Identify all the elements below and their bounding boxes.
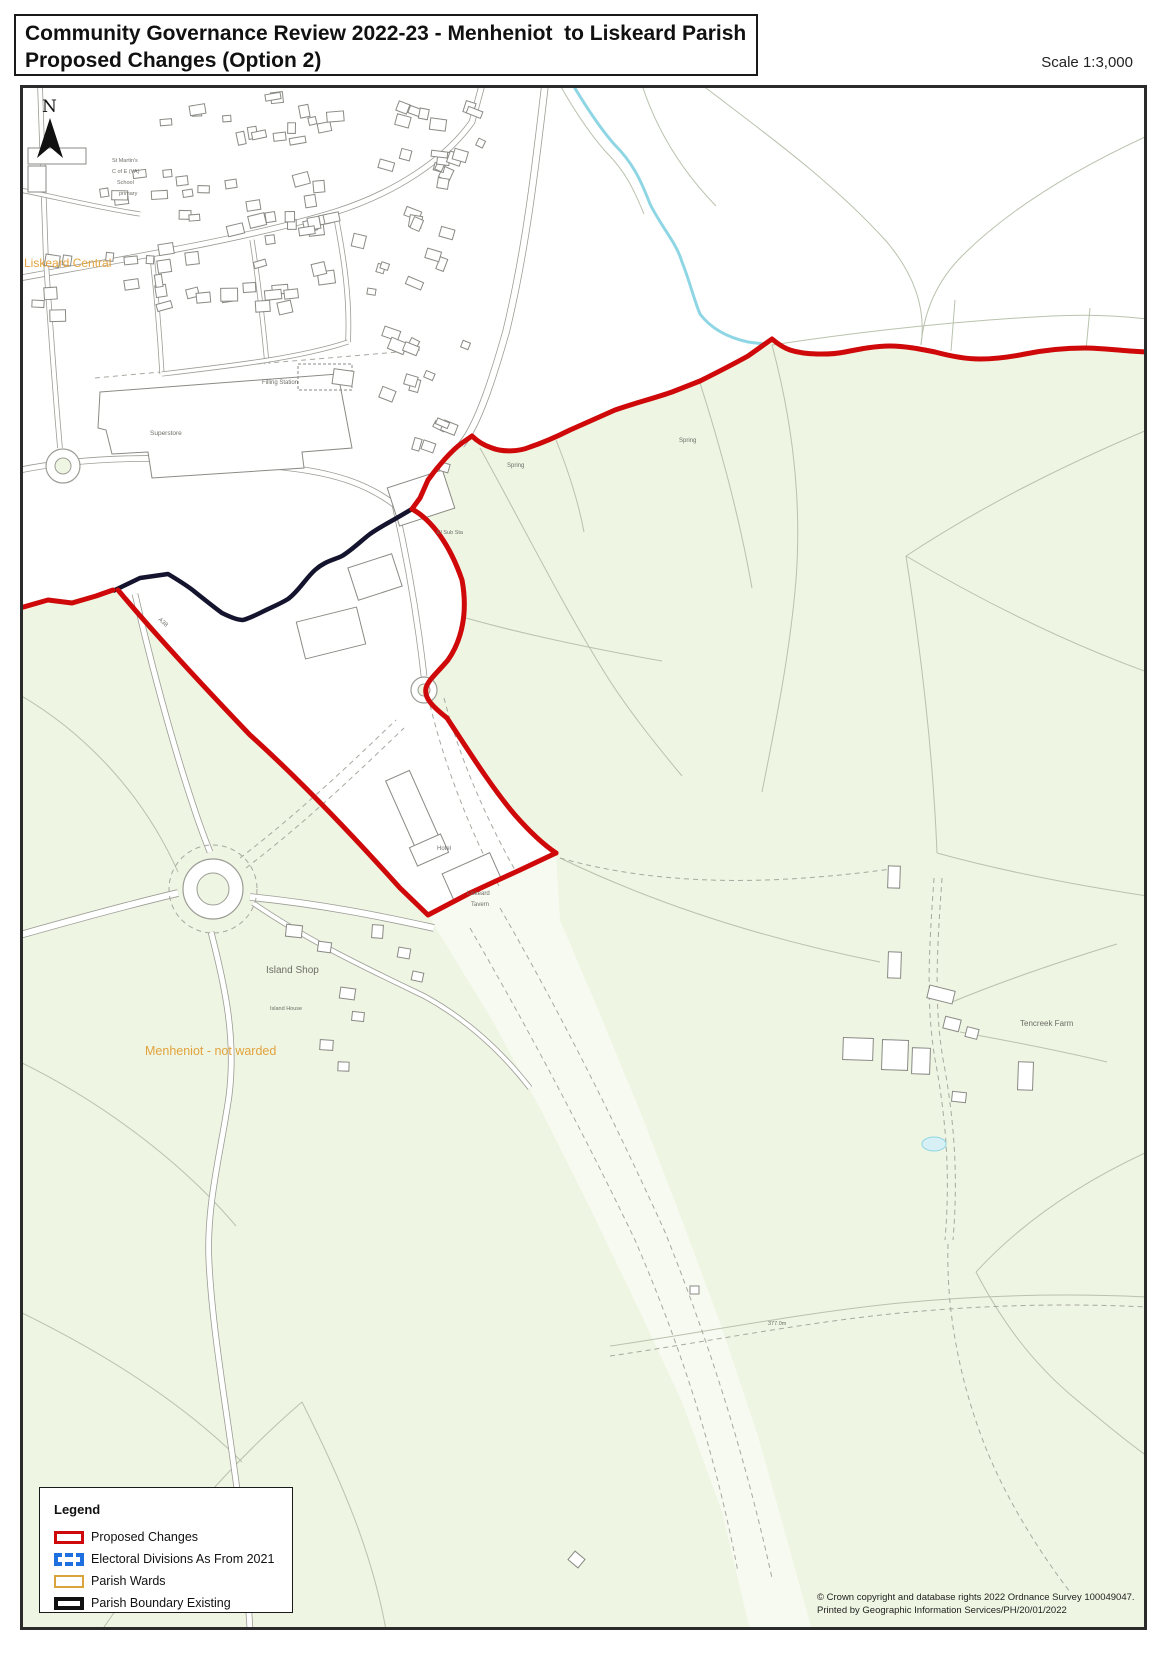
map-label: Tencreek Farm [1020, 1019, 1074, 1028]
proposed-changes-swatch-icon [54, 1531, 84, 1544]
parish-boundary-swatch-icon [54, 1597, 84, 1610]
map-label: Menheniot - not warded [145, 1044, 276, 1058]
electoral-divisions-swatch-icon [54, 1553, 84, 1566]
copyright-notice: © Crown copyright and database rights 20… [817, 1591, 1135, 1617]
title-line-1: Community Governance Review 2022-23 - Me… [25, 20, 747, 47]
legend-item-proposed-changes: Proposed Changes [54, 1526, 292, 1548]
map-label: Liskeard Central [24, 256, 111, 270]
map-label: Superstore [150, 430, 182, 437]
map-label: Liskeard [467, 891, 490, 897]
map-label: Tavern [471, 902, 489, 908]
map-label: Island House [270, 1006, 302, 1012]
map-label: 377.0m [768, 1321, 787, 1327]
scale-label: Scale 1:3,000 [1041, 54, 1133, 71]
title-line-2: Proposed Changes (Option 2) [25, 47, 747, 74]
map-label: Spring [507, 463, 524, 469]
legend-label: Electoral Divisions As From 2021 [91, 1552, 274, 1566]
map-label: primary [119, 191, 138, 197]
legend-label: Proposed Changes [91, 1530, 198, 1544]
map-label: C of E (VA) [112, 169, 140, 175]
map-canvas: Liskeard CentralMenheniot - not wardedIs… [20, 85, 1147, 1630]
map-label: St Martin's [112, 158, 138, 164]
legend-heading: Legend [54, 1502, 292, 1517]
legend-item-electoral-divisions: Electoral Divisions As From 2021 [54, 1548, 292, 1570]
map-layers: Liskeard CentralMenheniot - not wardedIs… [20, 85, 1147, 1630]
pond [922, 1137, 946, 1151]
legend-item-parish-boundary: Parish Boundary Existing [54, 1592, 292, 1614]
map-label: El Sub Sta [437, 530, 464, 536]
map-label: Spring [679, 438, 696, 444]
legend-box: Legend Proposed Changes Electoral Divisi… [39, 1487, 293, 1613]
legend-label: Parish Wards [91, 1574, 166, 1588]
map-label: Island Shop [266, 965, 319, 976]
legend-item-parish-wards: Parish Wards [54, 1570, 292, 1592]
legend-label: Parish Boundary Existing [91, 1596, 231, 1610]
title-box: Community Governance Review 2022-23 - Me… [14, 14, 758, 76]
map-label: Hotel [437, 846, 451, 852]
map-label: Filling Station [262, 380, 298, 386]
svg-text:N: N [42, 97, 57, 117]
copyright-line-1: © Crown copyright and database rights 20… [817, 1591, 1135, 1604]
map-label: School [117, 180, 134, 186]
copyright-line-2: Printed by Geographic Information Servic… [817, 1604, 1135, 1617]
parish-wards-swatch-icon [54, 1575, 84, 1588]
